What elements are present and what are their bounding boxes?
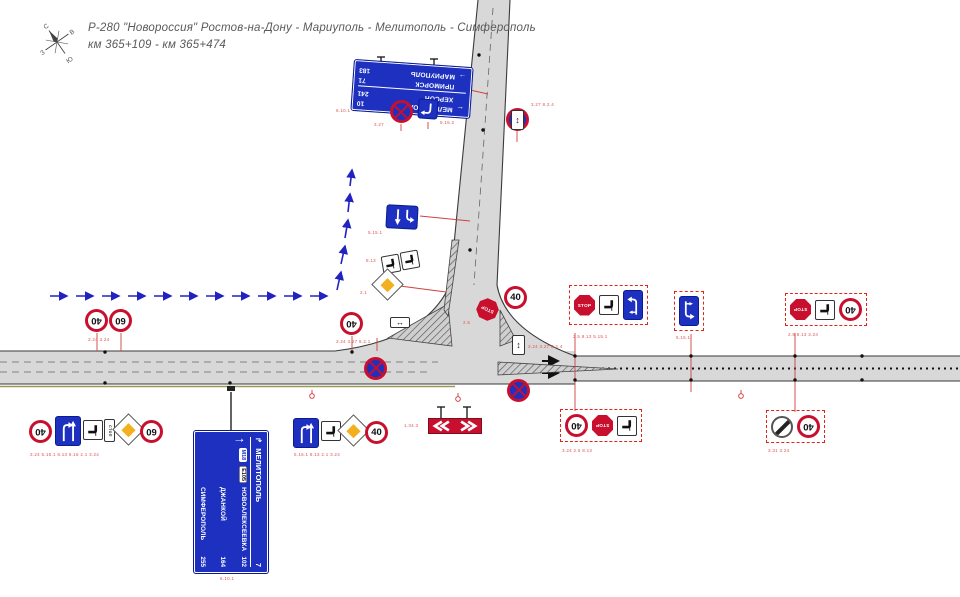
junction-diagram-icon bbox=[324, 424, 339, 439]
sign-code-label: 3.24 3.27 8.2.4 bbox=[528, 344, 563, 349]
bent-arrow-icon bbox=[419, 100, 436, 117]
junction-diagram-icon bbox=[86, 423, 101, 438]
sign-code-label: 8.13 bbox=[366, 258, 376, 263]
sign-code-label: 2.5 8.13 3.24 bbox=[788, 332, 818, 337]
sign-code-label: 3.24 2.5 8.13 bbox=[562, 448, 592, 453]
guide-board-south: ↱ МЕЛИТОПОЛЬ 7 ↑ М18 Е105 НОВОАЛЕКСЕЕВКА… bbox=[194, 431, 268, 573]
sign-speed-limit-40: 40 bbox=[29, 420, 52, 443]
destination-row: ДЖАНКОЙ 164 bbox=[220, 487, 227, 567]
destination-row: НОВОАЛЕКСЕЕВКА 102 bbox=[240, 487, 247, 567]
sign-turn-scheme bbox=[417, 98, 438, 119]
left-turn-arrow-icon bbox=[625, 292, 641, 318]
sign-code-label: 2.1 bbox=[360, 290, 367, 295]
projected-signs-box: STOP bbox=[569, 285, 648, 325]
leftright-arrow-icon: ↔ bbox=[396, 318, 404, 327]
plate-main-road-direction bbox=[599, 295, 619, 315]
svg-text:В: В bbox=[69, 28, 77, 36]
projected-signs-box: 40 bbox=[766, 410, 825, 443]
updown-arrow-icon: ↕ bbox=[516, 340, 521, 350]
sign-code-label: 2.5 8.13 5.15.1 bbox=[573, 334, 608, 339]
junction-diagram-icon bbox=[818, 302, 833, 317]
junction-diagram-icon bbox=[402, 252, 418, 268]
sign-stop: STOP bbox=[574, 295, 595, 316]
route-badge-e105: Е105 bbox=[239, 466, 247, 483]
board-row: ↱ МЕЛИТОПОЛЬ 7 bbox=[254, 437, 263, 567]
sign-code-label: 3.24 3.27 8.2.1 bbox=[336, 339, 371, 344]
sign-no-stopping bbox=[390, 100, 413, 123]
plate-zone-both: ↕ bbox=[512, 335, 525, 355]
sign-speed-limit-40: 40 bbox=[340, 312, 363, 335]
sign-turn-direction-chevrons bbox=[428, 418, 482, 434]
junction-diagram-icon bbox=[602, 298, 617, 313]
sign-code-label: 5.15.1 bbox=[368, 230, 382, 235]
destinations-list: НОВОАЛЕКСЕЕВКА 102 ДЖАНКОЙ 164 СИМФЕРОПО… bbox=[199, 487, 247, 567]
sign-stop: STOP bbox=[592, 415, 613, 436]
sign-speed-limit-60: 60 bbox=[140, 420, 163, 443]
up-arrow-icon: ↑ bbox=[234, 437, 247, 444]
compass-icon: С В Ю З bbox=[28, 12, 88, 74]
projected-signs-box: 40 STOP bbox=[560, 409, 642, 442]
sign-lane-directions bbox=[293, 418, 319, 448]
route-badge-m18: М18 bbox=[239, 448, 247, 463]
left-turn-arrow-icon bbox=[681, 298, 697, 324]
sign-stop: STOP bbox=[790, 299, 811, 320]
plate-main-road-direction bbox=[400, 250, 421, 271]
sign-code-label: 1.34.3 bbox=[404, 423, 418, 428]
projected-signs-box: STOP 40 bbox=[785, 293, 867, 326]
sign-no-stopping bbox=[507, 379, 530, 402]
sign-speed-limit-60: 60 bbox=[109, 309, 132, 332]
plate-main-road-direction bbox=[815, 300, 835, 320]
sign-code-label: 5.15.2 bbox=[440, 120, 454, 125]
chevrons-icon bbox=[429, 419, 481, 433]
svg-text:Ю: Ю bbox=[65, 55, 75, 65]
sign-speed-limit-40: 40 bbox=[839, 298, 862, 321]
plate-main-road-direction bbox=[83, 420, 103, 440]
lane-arrows-icon bbox=[57, 418, 79, 444]
sign-code-label: 3.24 3.24 bbox=[88, 337, 109, 342]
sign-speed-limit-40: 40 bbox=[797, 415, 820, 438]
left-arrow-icon: ← bbox=[455, 104, 465, 112]
sign-speed-limit-40: 40 bbox=[565, 414, 588, 437]
route-direction-arrows bbox=[50, 170, 352, 296]
svg-text:С: С bbox=[42, 22, 50, 31]
projected-signs-box bbox=[674, 291, 704, 331]
destination-row: СИМФЕРОПОЛЬ 255 bbox=[199, 487, 206, 567]
board-main-section: ↑ М18 Е105 НОВОАЛЕКСЕЕВКА 102 ДЖАНКОЙ 16… bbox=[199, 437, 247, 567]
plate-zone-both: ↕ bbox=[511, 110, 524, 130]
right-arrow-icon: → bbox=[458, 72, 468, 80]
sign-end-of-restrictions bbox=[771, 416, 793, 438]
lane-arrows-icon bbox=[387, 206, 416, 227]
sign-code-label: 6.10.1 bbox=[220, 576, 234, 581]
lane-arrows-icon bbox=[295, 420, 317, 446]
sign-lane-left bbox=[623, 290, 643, 320]
sign-code-label: 6.10.1 bbox=[336, 108, 350, 113]
sign-code-label: 5.15.1 8.13 2.1 3.24 bbox=[294, 452, 340, 457]
sign-lane-directions bbox=[385, 204, 418, 230]
sign-speed-limit-40: 40 bbox=[365, 421, 388, 444]
sign-lane-left bbox=[679, 296, 699, 326]
sign-speed-limit-40: 40 bbox=[504, 286, 527, 309]
sign-code-label: 3.24 5.15.1 8.13 6.16 2.1 3.24 bbox=[30, 452, 99, 457]
sign-code-label: 2.5 bbox=[463, 320, 470, 325]
board-support bbox=[227, 386, 235, 391]
sign-code-label: 3.31 3.24 bbox=[768, 448, 789, 453]
sign-no-stopping bbox=[364, 357, 387, 380]
svg-text:З: З bbox=[39, 49, 46, 57]
sign-code-label: 3.27 bbox=[374, 122, 384, 127]
updown-arrow-icon: ↕ bbox=[515, 115, 520, 125]
sign-speed-limit-40: 40 bbox=[85, 309, 108, 332]
board-divider bbox=[250, 437, 251, 567]
sign-code-label: 3.27 8.2.4 bbox=[531, 102, 554, 107]
plate-zone-leftright: ↔ bbox=[390, 317, 410, 328]
junction-diagram-icon bbox=[620, 418, 635, 433]
km-range: км 365+109 - км 365+474 bbox=[88, 37, 536, 54]
sign-code-label: 5.15.1 bbox=[676, 335, 690, 340]
drawing-title: Р-280 "Новороссия" Ростов-на-Дону - Мари… bbox=[88, 20, 536, 53]
plate-main-road-direction bbox=[617, 416, 637, 436]
bent-arrow-icon: ↱ bbox=[254, 437, 263, 443]
route-name: Р-280 "Новороссия" Ростов-на-Дону - Мари… bbox=[88, 20, 536, 37]
sign-lane-directions bbox=[55, 416, 81, 446]
road-signage-scheme: { "header": { "route": "Р-280 \"Новоросс… bbox=[0, 0, 960, 597]
